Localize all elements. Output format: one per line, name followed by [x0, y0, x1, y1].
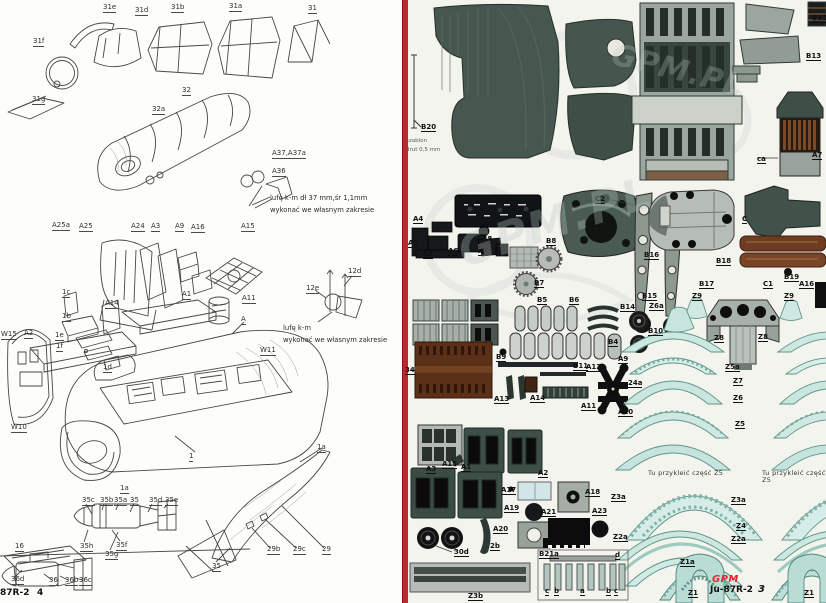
floor-a1: [122, 300, 216, 334]
slat-strip-a11: [543, 387, 588, 398]
skin-part-large: [434, 4, 559, 158]
scanned-kit-spread: 31f31e31d31b31a3131g3232aA37,A37aA36A25a…: [0, 0, 826, 603]
skin-part-2: [566, 19, 636, 88]
bracket-1b: [62, 316, 98, 342]
wheel-parts-30d: [417, 527, 463, 552]
skin-part-3: [568, 93, 636, 160]
bomb-36-body: [16, 562, 58, 586]
bracket-1c: [64, 292, 78, 316]
cowl-trunk-c1: [707, 300, 779, 370]
disc-a23: [592, 521, 609, 538]
firewall-part: [561, 190, 639, 257]
tail-fins: [178, 520, 236, 578]
glass-part-a17: [518, 482, 551, 500]
canopy-31a: [218, 17, 280, 78]
engine-block-part: [632, 3, 742, 180]
crescent-2b: [480, 518, 491, 554]
canopy-strip-31e: [70, 23, 114, 48]
parts-sheet-art: [408, 0, 826, 603]
part-a18: [558, 482, 589, 512]
bulkhead-w15: [8, 329, 53, 424]
canopy-frame-31: [288, 20, 330, 62]
ring-31f: [46, 57, 78, 89]
box-a16: [192, 270, 212, 294]
grid-block-parts: [413, 300, 498, 345]
bomb-35-body: [92, 504, 140, 528]
tail-fairing-part: [745, 186, 820, 238]
comb-part-b21: [543, 538, 585, 548]
wire-template-b20: [411, 55, 421, 128]
diagram-box-b21a: [538, 550, 628, 600]
brown-strip-parts: [740, 236, 826, 267]
cylinder-a11: [209, 297, 229, 305]
part-b12: [746, 4, 794, 34]
cowling-part-c: [649, 190, 734, 250]
assembly-diagram-art: [0, 0, 402, 603]
part-a14-small: [525, 377, 537, 392]
part-b19: [784, 268, 792, 276]
cowl-ring-fans-right: [772, 300, 826, 586]
instruction-diagram-page: [0, 0, 402, 603]
part-a8: [479, 226, 489, 236]
instrument-panel-a4: [455, 195, 541, 227]
strip-b11: [498, 362, 578, 367]
engine-mount-a9-a10: [598, 364, 629, 415]
cone-parts-a13: [506, 375, 526, 400]
panel-31g: [8, 96, 64, 119]
strip-a12: [540, 372, 586, 376]
disc-a19: [525, 503, 543, 521]
parts-sheet-page: [408, 0, 826, 603]
part-a16-edge: [815, 282, 826, 308]
horseshoe-z1-right: [772, 554, 826, 603]
part-b3: [496, 244, 508, 256]
part-b9: [500, 349, 507, 356]
panel-a24: [140, 243, 166, 300]
panel-a14: [102, 300, 120, 334]
strip-part-z3b: [410, 563, 530, 592]
radiator-part-a7: [757, 92, 823, 176]
canopy-31b: [148, 22, 212, 74]
canopy-31d: [94, 28, 141, 66]
part-b13: [740, 36, 800, 64]
box-a9: [178, 252, 199, 282]
bomb-36-nose: [2, 566, 16, 586]
fuselage-shell-1: [65, 330, 328, 472]
frame-a15: [206, 258, 262, 294]
comb-plate-34: [410, 342, 492, 398]
